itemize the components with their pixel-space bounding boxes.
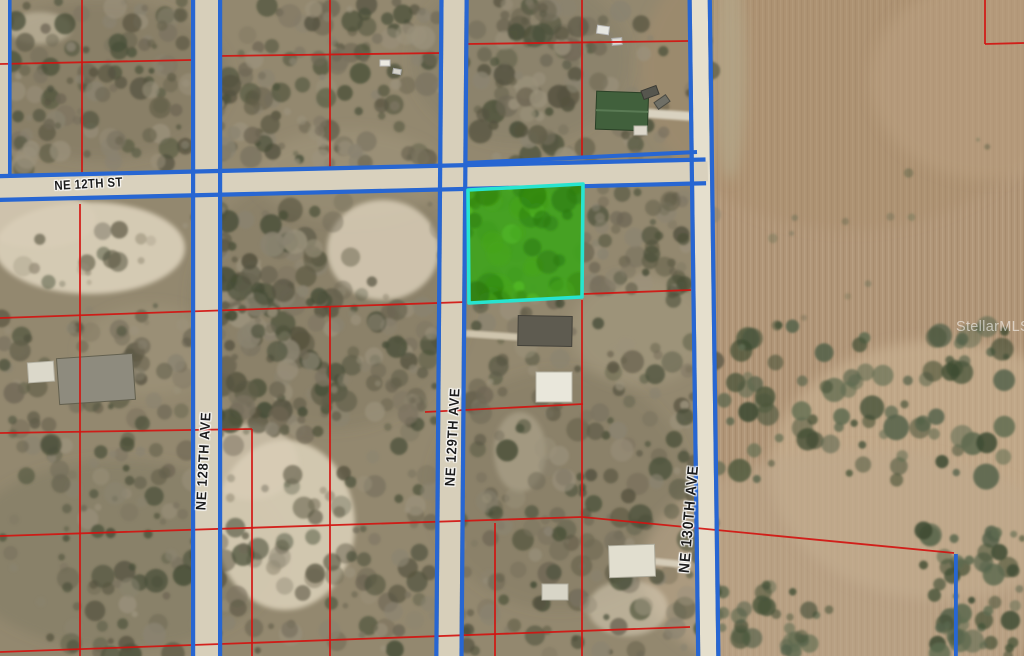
map-graphics bbox=[0, 0, 1024, 656]
highlighted-parcel bbox=[458, 176, 592, 315]
aerial-map: NE 12TH ST NE 128TH AVE NE 129TH AVE NE … bbox=[0, 0, 1024, 656]
